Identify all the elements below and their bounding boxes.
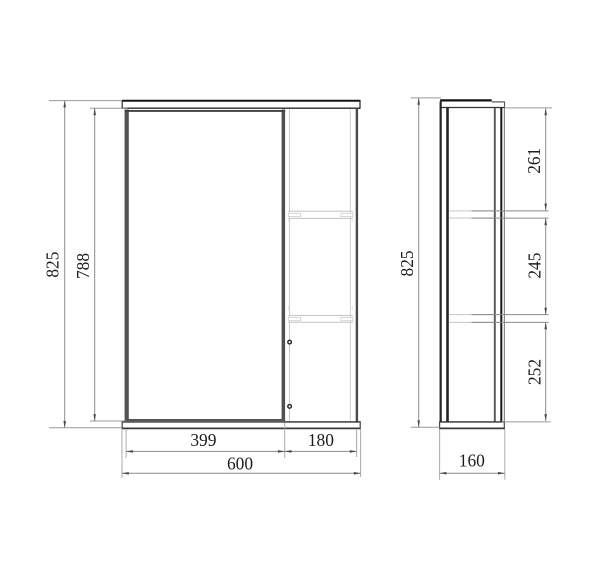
svg-text:600: 600 xyxy=(227,454,253,474)
svg-text:399: 399 xyxy=(190,430,216,450)
svg-text:160: 160 xyxy=(459,451,485,471)
svg-text:180: 180 xyxy=(308,430,334,450)
svg-text:252: 252 xyxy=(524,359,544,385)
svg-text:788: 788 xyxy=(73,253,93,279)
svg-text:261: 261 xyxy=(524,148,544,174)
svg-text:245: 245 xyxy=(524,252,544,278)
svg-text:825: 825 xyxy=(43,251,63,277)
svg-text:825: 825 xyxy=(397,250,417,276)
